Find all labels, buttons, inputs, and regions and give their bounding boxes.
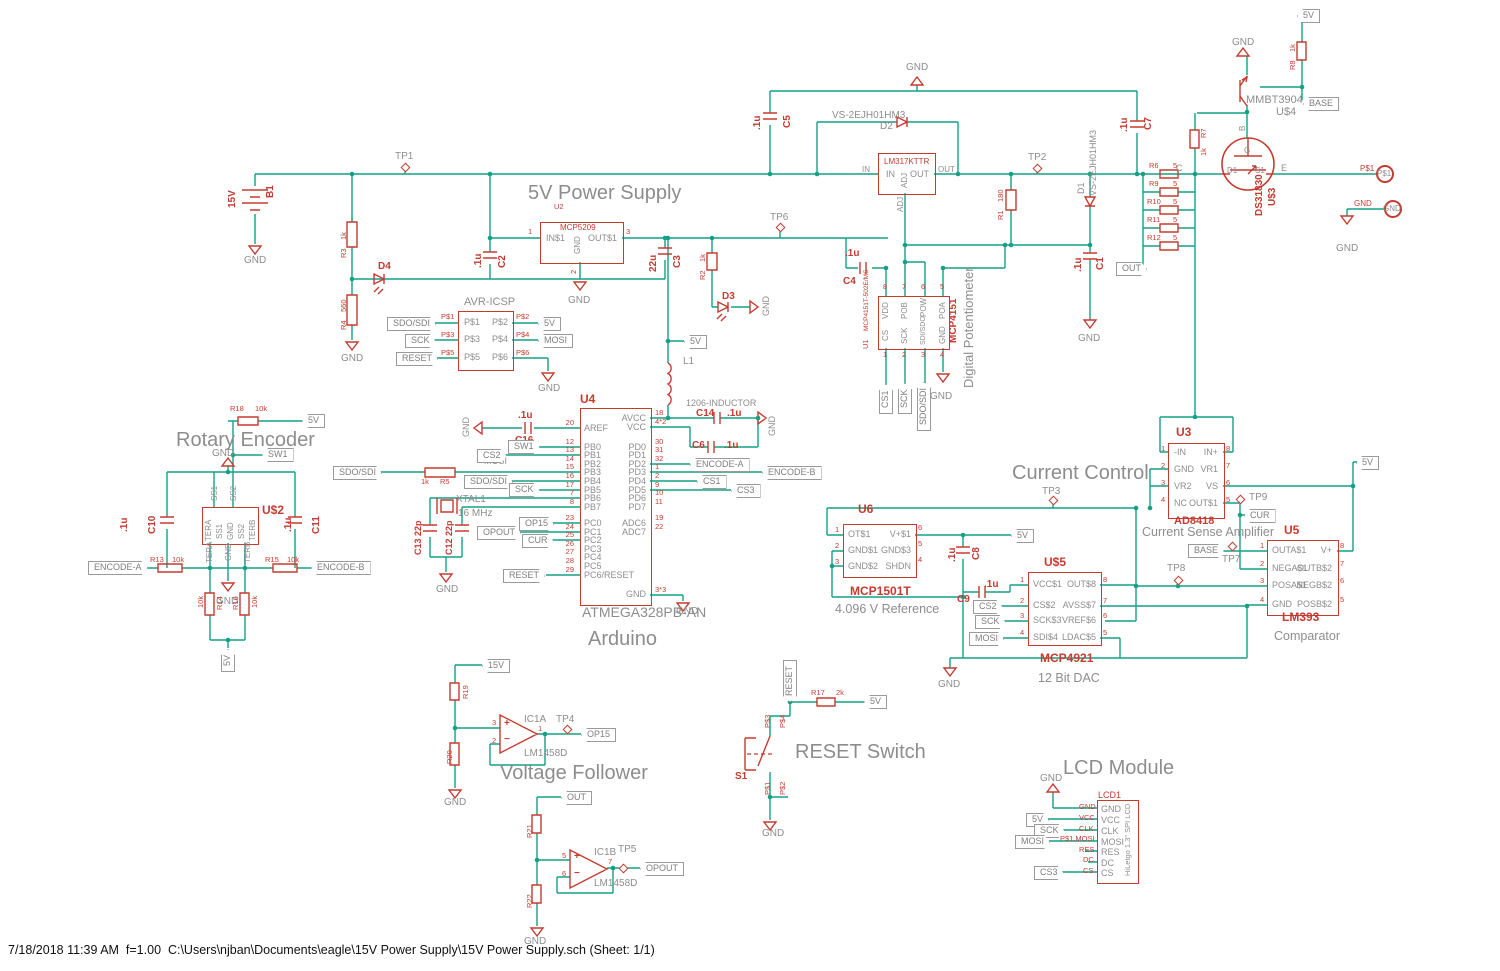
schematic-text-ss1: SS1 (216, 524, 224, 539)
schematic-text-gnd: GND (341, 354, 363, 365)
schematic-text-r11: R11 (1147, 216, 1160, 224)
schematic-text-2: 2 (492, 737, 496, 745)
schematic-text-gnd: GND (1232, 38, 1254, 49)
schematic-text-10: 10 (655, 489, 663, 497)
schematic-text-x: + (574, 852, 580, 863)
schematic-text-mcp4921: MCP4921 (1040, 652, 1093, 665)
schematic-text-in: IN+ (1204, 448, 1218, 457)
schematic-text-1k: 1k (421, 478, 429, 486)
schematic-text-r7: R7 (1200, 128, 1208, 138)
schematic-text-27: 27 (566, 548, 574, 556)
label-avr-icsp: AVR-ICSP (464, 297, 515, 309)
schematic-text-10k: 10k (172, 556, 184, 564)
schematic-text-8: 8 (883, 283, 887, 291)
schematic-text-tp2: TP2 (1028, 153, 1046, 164)
schematic-text-u-3: U$3 (1268, 188, 1279, 206)
schematic-text-22u: 22u (649, 255, 660, 272)
schematic-text-tp5: TP5 (618, 845, 636, 856)
net-flag-encode-a: ENCODE-A (88, 561, 148, 575)
schematic-text-u3: U3 (1176, 426, 1191, 439)
section-title-digital-potentiometer: Digital Potentiometer (962, 267, 976, 388)
net-flag-encode-a: ENCODE-A (690, 458, 750, 472)
schematic-text-v: V+ (1321, 546, 1332, 555)
section-title-rotary-encoder: Rotary Encoder (176, 430, 315, 451)
schematic-text-res: RES (1101, 848, 1120, 857)
schematic-text-gnd: GND (462, 417, 471, 437)
net-flag-opout: OPOUT (477, 526, 521, 540)
schematic-text-u2: U2 (554, 203, 564, 211)
net-flag-base: BASE (1303, 97, 1339, 111)
schematic-text-2k: 2k (836, 689, 844, 697)
net-flag-cs2: CS2 (477, 449, 507, 463)
schematic-text-1k: 1k (1200, 148, 1208, 156)
schematic-text-sck: SCK (901, 328, 909, 344)
schematic-text-gnd: GND (538, 384, 560, 395)
schematic-text-p-2: P$2 (492, 318, 508, 327)
schematic-text-u6: U6 (858, 503, 873, 516)
net-flag-reset: RESET (783, 660, 797, 702)
schematic-text-16: 16 (566, 472, 574, 480)
schematic-text-outa-1: OUTA$1 (1272, 546, 1306, 555)
schematic-text-gnd: GND (444, 798, 466, 809)
schematic-text-dc: DC (1083, 856, 1094, 864)
schematic-text-16-mhz: 16 MHz (458, 509, 492, 520)
schematic-text-p-1: P$1 (441, 313, 454, 321)
schematic-text-gnd: GND (626, 590, 646, 599)
schematic-text-p-4: P$4 (516, 331, 529, 339)
schematic-text-3: 3 (835, 558, 839, 566)
schematic-text-mcp4151t-502e-ms: MCP4151T-502E/MS (864, 270, 871, 331)
net-flag-mosi: MOSI (538, 334, 573, 348)
schematic-text-25: 25 (566, 531, 574, 539)
schematic-text-p-6: P$6 (516, 349, 529, 357)
schematic-text-ds31830: DS31830 (1255, 174, 1266, 216)
schematic-text-posb-2: POSB$2 (1297, 600, 1332, 609)
schematic-text-2: 2 (1161, 462, 1165, 470)
schematic-text-31: 31 (655, 446, 663, 454)
schematic-text-p-5: P$5 (464, 353, 480, 362)
schematic-text-cs: CS (1083, 867, 1093, 875)
schematic-text-vr2: VR2 (1174, 482, 1192, 491)
schematic-text-out: OUT (910, 170, 929, 179)
schematic-text-1: 1 (883, 351, 887, 359)
schematic-text-6: 6 (1226, 479, 1230, 487)
schematic-text-r5: R5 (440, 478, 450, 486)
schematic-text-1: 1 (1161, 445, 1165, 453)
schematic-text-s1: S1 (735, 772, 747, 783)
schematic-text-29: 29 (566, 566, 574, 574)
subtitle-vref: 4.096 V Reference (835, 603, 939, 616)
schematic-text-p-3: P$3 (441, 331, 454, 339)
schematic-text-5: 5 (1173, 234, 1177, 242)
schematic-text-p-4: P$4 (492, 335, 508, 344)
schematic-text-gnd-2: GND$2 (848, 562, 878, 571)
net-flag-reset: RESET (396, 352, 438, 366)
schematic-text-3: 3 (1161, 479, 1165, 487)
schematic-text-c6: C6 (692, 441, 705, 452)
schematic-text-gnd: GND (762, 296, 771, 316)
schematic-text-adc7: ADC7 (622, 528, 646, 537)
schematic-text-u-2: U$2 (262, 504, 284, 517)
schematic-text-5: 5 (918, 540, 922, 548)
schematic-text-gnd: GND (1079, 803, 1096, 811)
schematic-text-lm1458d: LM1458D (594, 879, 637, 890)
schematic-text-in: IN (862, 166, 870, 174)
schematic-text-2: 2 (1260, 560, 1264, 568)
schematic-sheet: 5V Power SupplyRotary EncoderArduinoVolt… (0, 0, 1500, 971)
schematic-text-tp9: TP9 (1249, 493, 1267, 504)
schematic-text-10k: 10k (197, 596, 205, 608)
schematic-text-in-1: IN$1 (546, 234, 565, 243)
schematic-text-r14: R14 (216, 596, 224, 610)
schematic-text-gnd: GND (676, 607, 698, 618)
schematic-text-p-1: P$1 (1377, 170, 1391, 178)
schematic-text-c: C (1176, 164, 1183, 173)
schematic-text-6: 6 (1103, 612, 1107, 620)
net-flag-cs3: CS3 (1034, 866, 1064, 880)
schematic-text-nc: NC (1174, 499, 1187, 508)
net-flag-cs2: CS2 (973, 600, 1003, 614)
schematic-text-c5: C5 (783, 115, 794, 128)
schematic-text-1u: .1u (948, 548, 959, 562)
schematic-text-gnd: GND (1383, 205, 1401, 213)
schematic-text-mcp4151: MCP4151 (949, 299, 960, 343)
schematic-text-c10: C10 (148, 516, 159, 534)
schematic-text-28: 28 (566, 557, 574, 565)
subtitle-dac: 12 Bit DAC (1038, 672, 1100, 685)
section-title-current-control: Current Control (1012, 463, 1149, 484)
schematic-text-1u: .1u (1120, 118, 1131, 132)
schematic-text-7: 7 (570, 489, 574, 497)
schematic-text-1u: .1u (753, 116, 764, 130)
schematic-text-r2: R2 (699, 270, 707, 280)
schematic-text-3: 3 (921, 351, 925, 359)
schematic-text-p-1: P$1 (1360, 165, 1374, 173)
schematic-text-5: 5 (1103, 629, 1107, 637)
schematic-text-u5: U5 (1284, 524, 1299, 537)
schematic-text-r20: R20 (446, 750, 454, 764)
schematic-text-p-6: P$6 (492, 353, 508, 362)
schematic-text-1u: .1u (518, 411, 532, 422)
schematic-text-r6: R6 (1149, 162, 1159, 170)
subtitle-current-sense-amplifier: Current Sense Amplifier (1142, 526, 1274, 539)
schematic-text-out-1: OUT$1 (1189, 499, 1218, 508)
schematic-text-c8: C8 (972, 547, 983, 560)
schematic-text-5: 5 (562, 852, 566, 860)
schematic-text-pb7: PB7 (584, 503, 601, 512)
schematic-text-1: 1 (1020, 576, 1024, 584)
schematic-text-out-1: OUT$1 (588, 234, 617, 243)
schematic-text-v-1: V+$1 (890, 530, 911, 539)
schematic-text-4: 4 (1161, 496, 1165, 504)
schematic-text-3: 3 (1020, 612, 1024, 620)
schematic-text-1u: .1u (120, 518, 131, 532)
schematic-text-8: 8 (570, 498, 574, 506)
schematic-text-r4: R4 (340, 320, 348, 330)
schematic-text-hiletgo-1-3-spi-lcd: HiLetgo 1.3" SPI LCD (1124, 804, 1132, 876)
schematic-text-gnd: GND (938, 680, 960, 691)
net-flag-cur: CUR (1244, 509, 1276, 523)
schematic-text-8: 8 (1340, 542, 1344, 550)
schematic-text-ic1b: IC1B (594, 848, 616, 859)
schematic-text-gnd: GND (1272, 600, 1292, 609)
schematic-text-r16: R16 (232, 596, 240, 610)
schematic-text-xtal1: XTAL1 (456, 495, 486, 506)
net-flag-base: BASE (1188, 544, 1224, 558)
schematic-text-d1: D1 (1077, 182, 1086, 194)
schematic-text-in: -IN (1174, 448, 1186, 457)
schematic-text-6: 6 (918, 524, 922, 532)
net-flag-15v: 15V (482, 659, 510, 673)
schematic-text-r1: R1 (997, 210, 1005, 220)
schematic-text-1: 1 (835, 526, 839, 534)
net-flag-sdo-sdi: SDO/SDI (387, 317, 436, 331)
section-title-voltage-follower: Voltage Follower (500, 763, 648, 784)
schematic-text-mcp1501t: MCP1501T (850, 585, 911, 598)
schematic-text-cs-2: CS$2 (1033, 601, 1056, 610)
schematic-text-g: G (1244, 147, 1250, 155)
net-flag-out: OUT (561, 791, 592, 805)
schematic-text-lm1458d: LM1458D (524, 749, 567, 760)
schematic-text-r3: R3 (340, 248, 348, 258)
schematic-text-r21: R21 (526, 824, 534, 838)
schematic-text-ot-1: OT$1 (848, 530, 871, 539)
schematic-text-1u: .1u (984, 580, 998, 591)
schematic-text-tp1: TP1 (395, 152, 413, 163)
schematic-text-lm317kttr: LM317KTTR (884, 158, 929, 166)
schematic-text-5: 5 (1173, 216, 1177, 224)
net-flag-sw1: SW1 (262, 448, 294, 462)
schematic-text-1u: .1u (727, 409, 741, 420)
schematic-text-x: − (574, 869, 580, 880)
schematic-text-c7: C7 (1144, 117, 1155, 130)
section-title-reset-switch: RESET Switch (795, 742, 926, 763)
schematic-text-13: 13 (566, 446, 574, 454)
schematic-text-cs: CS (882, 330, 890, 341)
schematic-text-vcc: VCC (1101, 816, 1120, 825)
schematic-text-4: 4 (1020, 629, 1024, 637)
schematic-text-aref: AREF (584, 424, 608, 433)
schematic-text-cs: CS (1101, 869, 1114, 878)
schematic-text-15v: 15V (228, 190, 239, 208)
net-flag-sck: SCK (509, 483, 540, 497)
schematic-text-d1: D1 (1227, 167, 1237, 175)
schematic-text-22: 22 (655, 523, 663, 531)
schematic-text-5: 5 (1173, 198, 1177, 206)
schematic-text-6: 6 (562, 870, 566, 878)
schematic-text-lcd1: LCD1 (1098, 791, 1121, 800)
schematic-text-b1: B1 (266, 185, 277, 198)
schematic-text-5: 5 (940, 283, 944, 291)
schematic-text-p-5: P$5 (441, 349, 454, 357)
net-flag-sdo-sdi: SDO/SDI (917, 382, 931, 431)
schematic-text-gnd: GND (227, 522, 235, 540)
schematic-text-r10: R10 (1147, 198, 1161, 206)
schematic-text-20: 20 (566, 419, 574, 427)
schematic-text-u4: U4 (580, 393, 595, 406)
net-flag-out: OUT (1116, 262, 1147, 276)
schematic-text-15: 15 (566, 463, 574, 471)
schematic-text-c2: C2 (498, 255, 509, 268)
schematic-text-shdn: SHDN (885, 562, 911, 571)
schematic-text-c1: C1 (1096, 257, 1107, 270)
schematic-text-4: 4 (940, 351, 944, 359)
schematic-text-c11: C11 (312, 516, 323, 534)
schematic-text-gnd: GND (1101, 805, 1121, 814)
schematic-text-r13: R13 (150, 556, 164, 564)
net-flag-op15: OP15 (581, 728, 616, 742)
schematic-text-gnd: GND (1078, 334, 1100, 345)
schematic-text-7: 7 (1340, 560, 1344, 568)
schematic-text-1u: .1u (284, 518, 295, 532)
net-flag-sck: SCK (975, 615, 1006, 629)
schematic-text-1: 1 (538, 725, 542, 733)
schematic-text-1k: 1k (1289, 44, 1297, 52)
schematic-text-clk: CLK (1101, 827, 1119, 836)
schematic-text-7: 7 (1226, 462, 1230, 470)
net-flag-sdo-sdi: SDO/SDI (333, 466, 382, 480)
schematic-text-c3: C3 (673, 255, 684, 268)
schematic-text-pow: POW (920, 298, 928, 317)
schematic-text-terb: TERB (249, 520, 257, 541)
schematic-text-res: RES (1079, 846, 1094, 854)
net-flag-sck: SCK (405, 334, 436, 348)
schematic-text-gnd: GND (762, 829, 784, 840)
schematic-text-7: 7 (902, 283, 906, 291)
section-title-5v-power-supply: 5V Power Supply (528, 183, 681, 204)
net-flag-reset: RESET (503, 569, 545, 583)
schematic-text-c14: C14 (696, 409, 714, 420)
schematic-text-560: 560 (340, 299, 348, 312)
schematic-text-p-3: P$3 (764, 715, 772, 728)
schematic-text-gnd: GND (244, 256, 266, 267)
schematic-text-4-2: 4*2 (655, 418, 666, 426)
schematic-text-1u: .1u (724, 441, 738, 452)
schematic-text-1: 1 (528, 228, 532, 236)
schematic-text-vcc-1: VCC$1 (1033, 580, 1062, 589)
net-flag-cs1: CS1 (697, 475, 727, 489)
schematic-text-sck-3: SCK$3 (1033, 616, 1062, 625)
schematic-text-tera: TERA (206, 542, 214, 563)
schematic-text-3: 3 (1260, 577, 1264, 585)
schematic-text-1: 1 (1260, 542, 1264, 550)
schematic-text-pc6-reset: PC6/RESET (584, 571, 634, 580)
schematic-text-gnd: GND (212, 449, 234, 460)
schematic-text-gnd: GND (1040, 774, 1062, 785)
schematic-text-vdd: VDD (882, 302, 890, 319)
schematic-text-11: 11 (655, 498, 663, 506)
schematic-text-p-4: P$4 (779, 715, 787, 728)
net-flag-encode-b: ENCODE-B (311, 561, 371, 575)
net-flag-opout: OPOUT (640, 862, 684, 876)
schematic-text-clk: CLK (1079, 825, 1094, 833)
schematic-text-ss2: SS2 (238, 524, 246, 539)
schematic-text-10k: 10k (287, 556, 299, 564)
schematic-text-terb: TERB (244, 542, 252, 563)
schematic-text-1u: .1u (474, 254, 485, 268)
schematic-text-2: 2 (655, 472, 659, 480)
schematic-text-2: 2 (1020, 597, 1024, 605)
schematic-text-sdi-sdo: SDI/SDO (920, 316, 927, 345)
net-flag-op15: OP15 (519, 517, 554, 531)
schematic-text-u-4: U$4 (1276, 107, 1296, 119)
schematic-text-5: 5 (1340, 596, 1344, 604)
schematic-text-u-5: U$5 (1044, 556, 1066, 569)
schematic-text-c13-22p: C13 22p (414, 520, 423, 555)
schematic-text-c9: C9 (957, 595, 970, 606)
schematic-text-p-2: P$2 (516, 313, 529, 321)
schematic-text-gnd: GND (906, 63, 928, 74)
schematic-text-vcc: VCC (1079, 814, 1095, 822)
schematic-text-3: 3 (492, 719, 496, 727)
schematic-text-poa: POA (939, 302, 947, 319)
schematic-text-gnd: GND (225, 543, 233, 561)
schematic-text-p-1: P$1 (464, 318, 480, 327)
schematic-text-gnd-1: GND$1 (848, 546, 878, 555)
schematic-text-gnd: GND (568, 296, 590, 307)
schematic-text-gnd: GND (1174, 465, 1194, 474)
schematic-text-23: 23 (566, 514, 574, 522)
schematic-text-sdi-4: SDI$4 (1033, 633, 1058, 642)
schematic-text-8: 8 (1103, 576, 1107, 584)
schematic-text-ss2: SS2 (230, 486, 238, 501)
schematic-text-r8: R8 (1289, 60, 1297, 70)
schematic-text-r9: R9 (1149, 180, 1159, 188)
schematic-text-4: 4 (1260, 596, 1264, 604)
schematic-text-tp4: TP4 (556, 715, 574, 726)
schematic-text-p-1-mosi: P$1.MOSI (1060, 835, 1095, 843)
net-flag-encode-b: ENCODE-B (762, 466, 822, 480)
schematic-text-u1: U1 (862, 339, 870, 349)
schematic-text-5: 5 (1173, 180, 1177, 188)
schematic-text-r22: R22 (526, 894, 534, 908)
net-flag-mosi: MOSI (969, 632, 1004, 646)
schematic-text-gnd: GND (1354, 200, 1372, 208)
schematic-text-gnd: GND (574, 236, 582, 254)
schematic-text-2: 2 (835, 542, 839, 550)
schematic-text-vr1: VR1 (1200, 465, 1218, 474)
net-flag-sck: SCK (898, 383, 912, 414)
schematic-text-10k: 10k (251, 596, 259, 608)
schematic-text-mmbt3904: MMBT3904 (1246, 95, 1303, 107)
schematic-text-b: B (1239, 126, 1247, 131)
net-flag-cs1: CS1 (879, 384, 893, 414)
schematic-text-ad8418: AD8418 (1174, 516, 1214, 528)
schematic-text-d4: D4 (378, 262, 391, 273)
schematic-text-gnd: GND (939, 326, 947, 344)
schematic-text-vcc: VCC (627, 423, 646, 432)
schematic-text-2: 2 (570, 270, 578, 274)
subtitle-comparator: Comparator (1274, 630, 1340, 643)
net-flag-sdo-sdi: SDO/SDI (464, 475, 513, 489)
status-bar: 7/18/2018 11:39 AM f=1.00 C:\Users\njban… (8, 944, 655, 957)
schematic-text-10k: 10k (255, 405, 267, 413)
schematic-text-adj: ADJ (901, 173, 909, 188)
schematic-text-18: 18 (655, 409, 663, 417)
schematic-text-x: − (504, 735, 510, 746)
schematic-text-pob: POB (901, 302, 909, 319)
schematic-text-2: 2 (902, 351, 906, 359)
schematic-text-1u: .1u (1074, 258, 1085, 272)
schematic-text-1k: 1k (699, 254, 707, 262)
schematic-text-19: 19 (655, 514, 663, 522)
schematic-text-5: 5 (1226, 496, 1230, 504)
schematic-text-r17: R17 (811, 689, 825, 697)
schematic-text-6: 6 (1340, 577, 1344, 585)
schematic-text-x: + (504, 719, 510, 730)
schematic-text-d3: D3 (722, 292, 735, 303)
schematic-text-gnd: GND (768, 416, 777, 436)
